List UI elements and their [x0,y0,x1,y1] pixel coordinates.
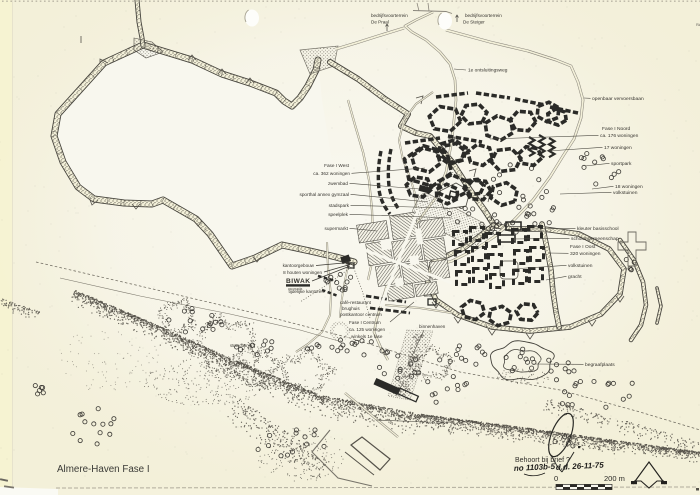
svg-text:sportpark: sportpark [611,161,632,167]
svg-text:ca. 125 woningen: ca. 125 woningen [349,327,385,332]
svg-text:begraafplaats: begraafplaats [585,362,615,368]
svg-text:Fase I Centrum: Fase I Centrum [349,320,381,325]
svg-text:kerk: kerk [424,293,433,298]
svg-text:BIWAK: BIWAK [286,278,310,285]
svg-text:18 woningen: 18 woningen [615,184,643,190]
svg-text:openbaar vervoersbaan: openbaar vervoersbaan [592,96,644,102]
svg-text:winkels 1e fase: winkels 1e fase [351,334,383,339]
svg-text:werkhaven: werkhaven [426,420,449,425]
svg-text:scholengemeenschap: scholengemeenschap [571,236,619,242]
svg-text:Almere-Haven Fase I: Almere-Haven Fase I [57,464,150,475]
svg-text:200 m: 200 m [604,474,625,483]
svg-text:Fase I Noord: Fase I Noord [602,126,631,132]
svg-text:rw: rw [696,22,700,27]
svg-text:stadspark: stadspark [329,203,350,208]
svg-text:sporthal annex gymzaal: sporthal annex gymzaal [299,192,349,197]
svg-text:ca. 176 woningen: ca. 176 woningen [600,133,639,139]
svg-text:speelplek: speelplek [328,212,348,217]
svg-text:gracht: gracht [568,274,582,280]
svg-text:Fase I Oost: Fase I Oost [570,244,596,250]
svg-text:postkantoor centrum: postkantoor centrum [340,312,382,317]
svg-text:café-restaurant: café-restaurant [340,300,372,305]
svg-text:8 houten woningen: 8 houten woningen [283,270,322,275]
svg-text:1e ontsluitingsweg: 1e ontsluitingsweg [468,68,508,74]
svg-text:kantoorgebouw: kantoorgebouw [283,263,315,268]
svg-text:brughuis: brughuis [342,306,360,311]
svg-text:bedrijfsvoorterrein: bedrijfsvoorterrein [371,13,408,18]
svg-text:bedrijfsvoorterrein: bedrijfsvoorterrein [465,13,502,18]
svg-text:zwembad: zwembad [328,181,348,186]
svg-text:320 woningen: 320 woningen [570,251,601,257]
svg-text:volkstuinen: volkstuinen [568,263,593,269]
svg-text:ca. 362 woningen: ca. 362 woningen [313,171,350,176]
svg-text:tijdelijke kantoren: tijdelijke kantoren [289,289,325,294]
svg-text:17 woningen: 17 woningen [604,145,632,151]
svg-text:De Steiger: De Steiger [463,20,485,25]
svg-text:strandbank: strandbank [230,343,252,348]
svg-text:supermarkt: supermarkt [325,226,349,231]
svg-text:kleuter basisschool: kleuter basisschool [577,226,619,232]
svg-text:binnenhaven: binnenhaven [419,324,446,329]
svg-text:De Praal: De Praal [371,20,389,25]
svg-text:Fase I West: Fase I West [324,163,350,168]
svg-text:0: 0 [554,474,558,483]
svg-text:volkstuinen: volkstuinen [613,190,638,196]
